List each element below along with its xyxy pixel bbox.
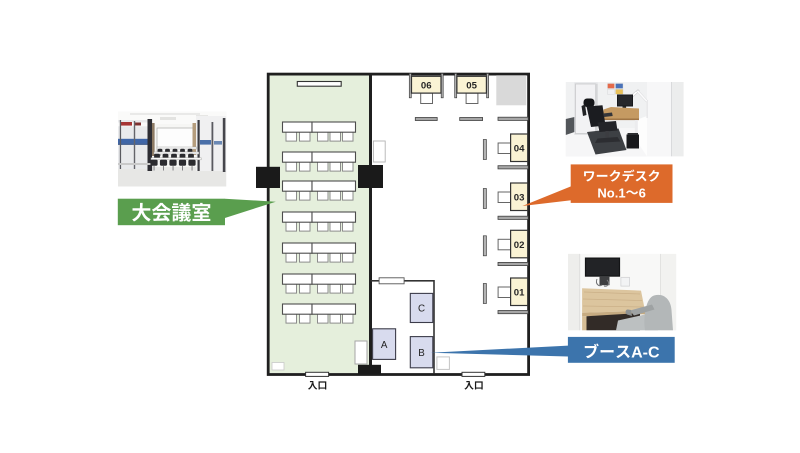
svg-text:02: 02 bbox=[514, 240, 525, 251]
svg-text:B: B bbox=[418, 348, 425, 359]
svg-text:6: 6 bbox=[639, 185, 646, 200]
svg-text:A: A bbox=[381, 340, 388, 351]
svg-text:04: 04 bbox=[514, 144, 525, 155]
svg-text:06: 06 bbox=[421, 81, 432, 92]
svg-text:C: C bbox=[418, 304, 425, 315]
svg-text:A-C: A-C bbox=[631, 344, 660, 361]
svg-text:01: 01 bbox=[514, 288, 525, 299]
svg-text:05: 05 bbox=[466, 81, 477, 92]
svg-text:No.1: No.1 bbox=[597, 185, 625, 200]
svg-text:03: 03 bbox=[514, 193, 525, 204]
